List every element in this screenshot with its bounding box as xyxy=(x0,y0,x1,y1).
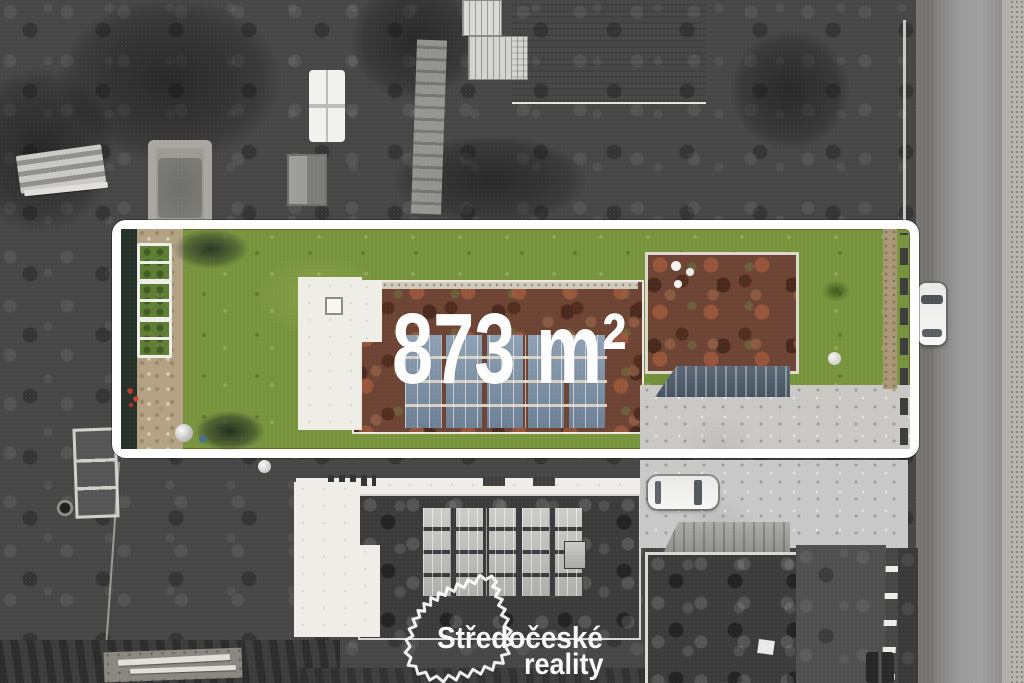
aerial-property-photo: 873 m² Středočeské reality xyxy=(0,0,1024,683)
garden-table xyxy=(309,70,345,142)
garden-well xyxy=(56,499,74,517)
trash-bins xyxy=(866,652,894,683)
hedge-strip-right xyxy=(898,548,918,683)
car-windshield xyxy=(694,480,702,505)
road-edge-line xyxy=(1002,0,1010,683)
house-white-roof-step xyxy=(358,280,382,342)
garden-bush xyxy=(173,229,249,269)
garden-bush xyxy=(195,411,265,451)
roof-vents-white xyxy=(668,258,700,292)
car-windshield xyxy=(921,295,943,304)
boundary-fence-line xyxy=(903,20,906,220)
road-shoulder xyxy=(1010,0,1024,683)
street-fence-dashes xyxy=(900,233,908,445)
parked-car-road xyxy=(918,283,946,345)
pallet-stack xyxy=(462,0,502,36)
neighbor-solar-panel-small xyxy=(565,542,585,568)
roof-hatch xyxy=(325,297,343,315)
exterior-stairs xyxy=(655,366,790,397)
neighbor-garden-white-square xyxy=(757,639,775,655)
red-flowers xyxy=(126,387,140,409)
sand-pit-inner xyxy=(158,158,202,218)
roof-gravel-edge xyxy=(354,282,638,289)
road xyxy=(934,0,1006,683)
front-lawn-mulch xyxy=(883,229,897,389)
garden-shed-roof xyxy=(287,154,327,206)
raised-bed xyxy=(137,281,172,320)
neighbor-garden-bed-roof xyxy=(645,552,802,683)
area-label: 873 m² xyxy=(392,299,626,399)
wood-walkway xyxy=(411,40,447,215)
neighbor-roof-hatch xyxy=(533,477,555,486)
front-lawn-ball xyxy=(828,352,841,365)
lawn-sphere xyxy=(175,424,193,442)
neighbor-exterior-stairs xyxy=(663,522,790,553)
lawn-blue-item xyxy=(199,435,207,443)
neighbor-white-roof xyxy=(294,482,360,637)
top-house-roof xyxy=(512,0,706,104)
car-rear-window xyxy=(655,481,661,504)
hedge-strip xyxy=(121,229,137,449)
neighbor-white-roof-step xyxy=(356,545,380,637)
neighbor-roof-hatch xyxy=(483,477,505,486)
neighbor-parked-car xyxy=(648,476,718,509)
tree-canopy xyxy=(710,10,870,170)
raised-bed xyxy=(137,319,172,358)
lawn-ball-small xyxy=(258,460,271,473)
raised-bed xyxy=(137,243,172,282)
watermark-brand-line2: reality xyxy=(524,650,604,680)
car-rear-window xyxy=(922,329,942,337)
front-lawn-bush xyxy=(817,277,855,305)
